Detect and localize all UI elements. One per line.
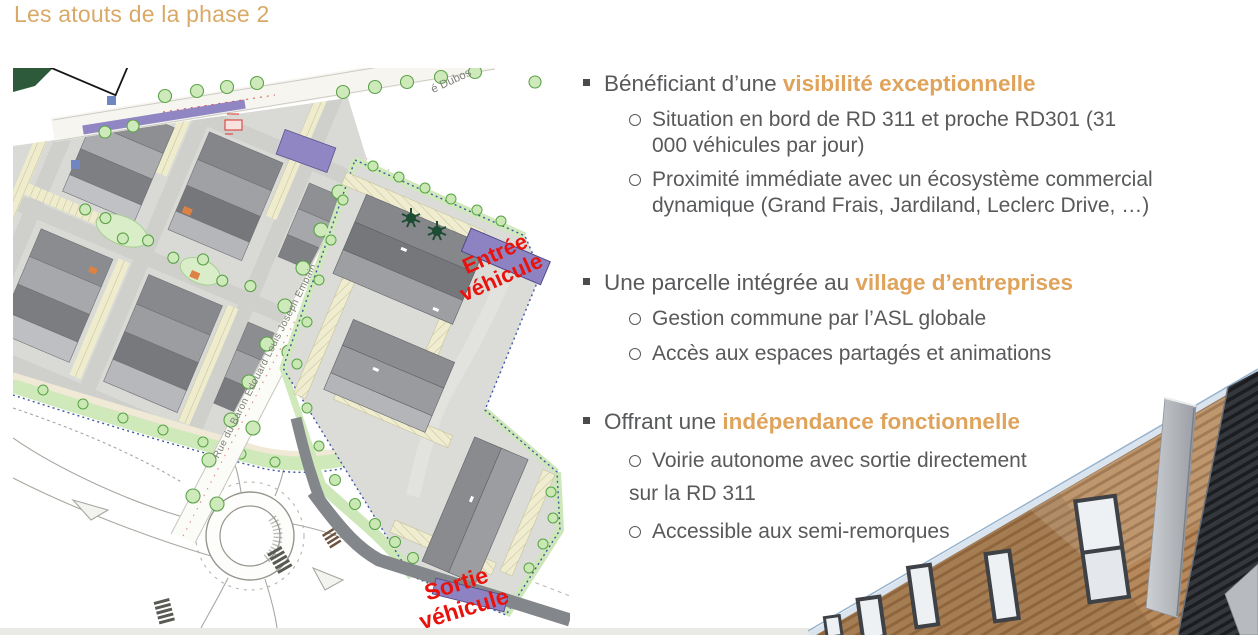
- building-photo-container: [728, 368, 1258, 635]
- circle-bullet-icon: [629, 313, 641, 325]
- slide-title: Les atouts de la phase 2: [14, 1, 269, 28]
- highlight-text: visibilité exceptionnelle: [783, 71, 1036, 96]
- square-bullet-icon: [583, 417, 590, 424]
- slide-bottom-strip: [0, 628, 820, 635]
- bullet-item: Une parcelle intégrée au village d’entre…: [583, 269, 1168, 296]
- site-plan-container: é Dubos Rue du Baron Edouard Louis Josep…: [13, 68, 570, 628]
- sub-bullet-text: Proximité immédiate avec un écosystème c…: [652, 167, 1153, 218]
- sub-bullet-text: Situation en bord de RD 311 et proche RD…: [652, 107, 1116, 158]
- bullet-text: Une parcelle intégrée au village d’entre…: [604, 269, 1073, 296]
- square-bullet-icon: [583, 278, 590, 285]
- sub-bullet-item: Gestion commune par l’ASL globale: [629, 306, 1168, 332]
- highlight-text: village d’entreprises: [855, 270, 1073, 295]
- bullet-group-1: Bénéficiant d’une visibilité exceptionne…: [583, 70, 1168, 227]
- circle-bullet-icon: [629, 174, 641, 186]
- circle-bullet-icon: [629, 526, 641, 538]
- circle-bullet-icon: [629, 455, 641, 467]
- circle-bullet-icon: [629, 348, 641, 360]
- bullet-group-2: Une parcelle intégrée au village d’entre…: [583, 269, 1168, 375]
- bullet-text: Bénéficiant d’une visibilité exceptionne…: [604, 70, 1035, 97]
- sub-bullet-item: Proximité immédiate avec un écosystème c…: [629, 167, 1168, 218]
- bullet-item: Bénéficiant d’une visibilité exceptionne…: [583, 70, 1168, 97]
- square-bullet-icon: [583, 79, 590, 86]
- sub-bullet-item: Situation en bord de RD 311 et proche RD…: [629, 107, 1168, 158]
- sub-bullet-text: Gestion commune par l’ASL globale: [652, 306, 986, 332]
- sub-bullet-item: Accès aux espaces partagés et animations: [629, 341, 1168, 367]
- circle-bullet-icon: [629, 114, 641, 126]
- site-plan-map: é Dubos Rue du Baron Edouard Louis Josep…: [13, 68, 570, 628]
- sub-bullet-text: Accès aux espaces partagés et animations: [652, 341, 1051, 367]
- building-photo: [728, 368, 1258, 635]
